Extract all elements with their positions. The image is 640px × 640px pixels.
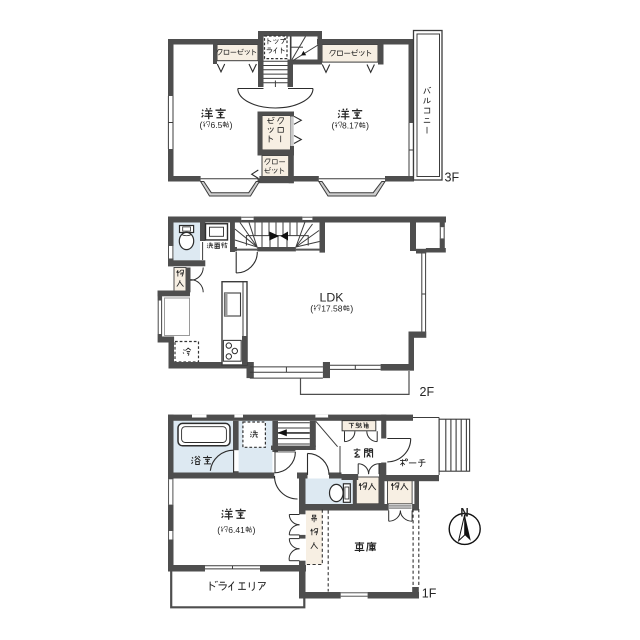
svg-text:): ) — [230, 120, 233, 130]
svg-text:LDK: LDK — [320, 291, 345, 305]
svg-text:3F: 3F — [445, 171, 460, 185]
svg-text:(: ( — [200, 120, 203, 130]
svg-text:2F: 2F — [420, 385, 435, 399]
svg-text:17.58: 17.58 — [321, 304, 343, 314]
svg-text:(: ( — [310, 304, 313, 314]
svg-text:): ) — [366, 121, 369, 131]
svg-text:(: ( — [332, 121, 335, 131]
svg-text:): ) — [253, 525, 256, 535]
svg-text:6.5: 6.5 — [211, 120, 223, 130]
svg-text:8.17: 8.17 — [342, 121, 359, 131]
svg-text:(: ( — [217, 525, 220, 535]
svg-text:6.41: 6.41 — [228, 525, 245, 535]
svg-text:1F: 1F — [422, 587, 437, 601]
svg-text:): ) — [350, 304, 353, 314]
